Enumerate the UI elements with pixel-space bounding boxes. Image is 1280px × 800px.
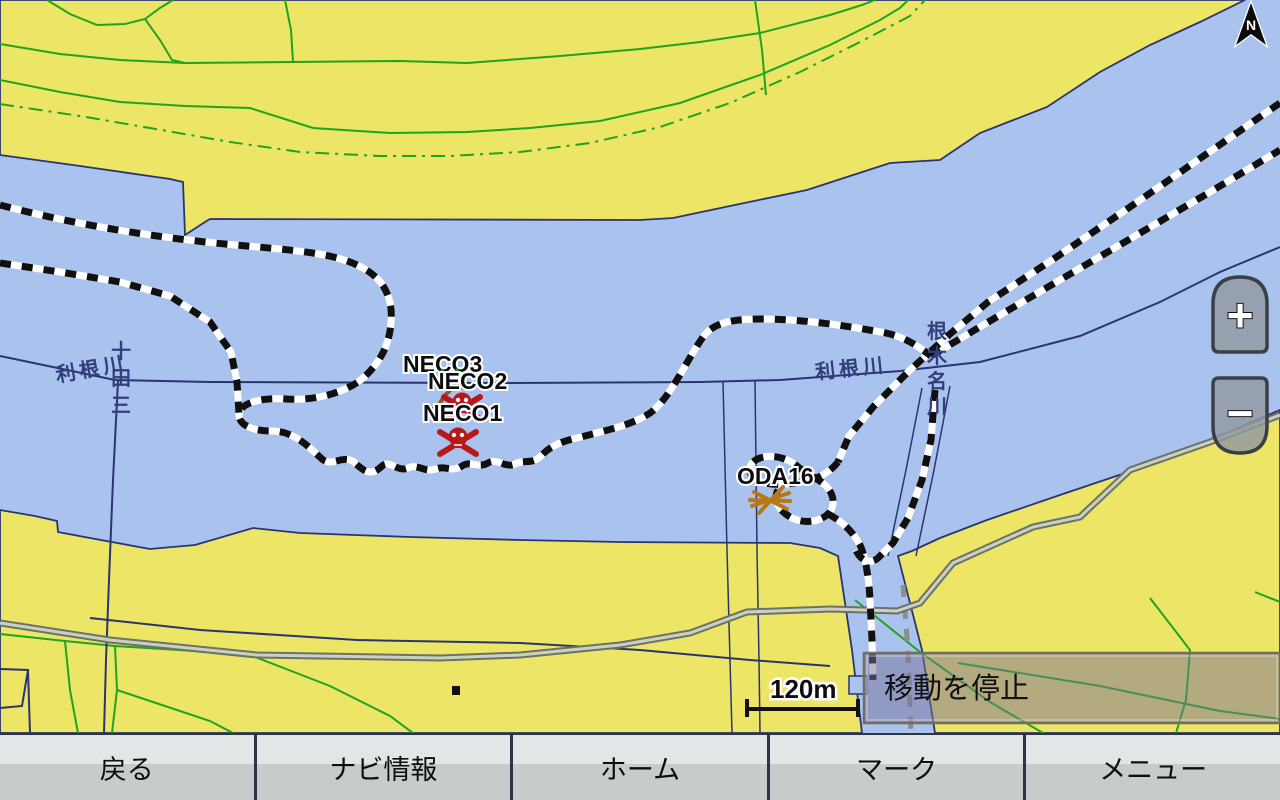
stop-moving-button[interactable]: 移動を停止 xyxy=(864,653,1280,723)
back-label: 戻る xyxy=(100,748,154,787)
back-button[interactable]: 戻る xyxy=(0,735,254,800)
waypoint-label: NECO2 xyxy=(428,368,507,394)
zoom-in-button[interactable]: + xyxy=(1213,277,1267,352)
mark-label: マーク xyxy=(856,748,937,787)
nav-info-button[interactable]: ナビ情報 xyxy=(254,735,511,800)
bottom-softkey-bar: 戻る ナビ情報 ホーム マーク メニュー xyxy=(0,733,1280,800)
map-canvas[interactable]: 利根川 利根川 十田三 根木名川 NECO3 NECO2 xyxy=(0,0,1280,733)
stop-moving-label: 移動を停止 xyxy=(884,672,1029,705)
waypoint-label: ODA16 xyxy=(737,463,814,489)
boundary-label-vertical: 十田三 xyxy=(111,340,131,417)
scale-label: 120m xyxy=(770,674,837,704)
plus-icon: + xyxy=(1227,289,1254,341)
nav-info-label: ナビ情報 xyxy=(329,748,437,787)
building-dot xyxy=(452,686,460,695)
home-label: ホーム xyxy=(600,748,680,787)
zoom-out-button[interactable]: − xyxy=(1213,378,1267,453)
menu-button[interactable]: メニュー xyxy=(1023,735,1280,800)
gps-map-screen: 利根川 利根川 十田三 根木名川 NECO3 NECO2 xyxy=(0,0,1280,800)
menu-label: メニュー xyxy=(1099,748,1207,787)
svg-text:N: N xyxy=(1246,17,1256,33)
minus-icon: − xyxy=(1227,387,1254,439)
home-button[interactable]: ホーム xyxy=(510,735,767,800)
mark-button[interactable]: マーク xyxy=(767,735,1024,800)
waypoint-label: NECO1 xyxy=(423,400,502,426)
